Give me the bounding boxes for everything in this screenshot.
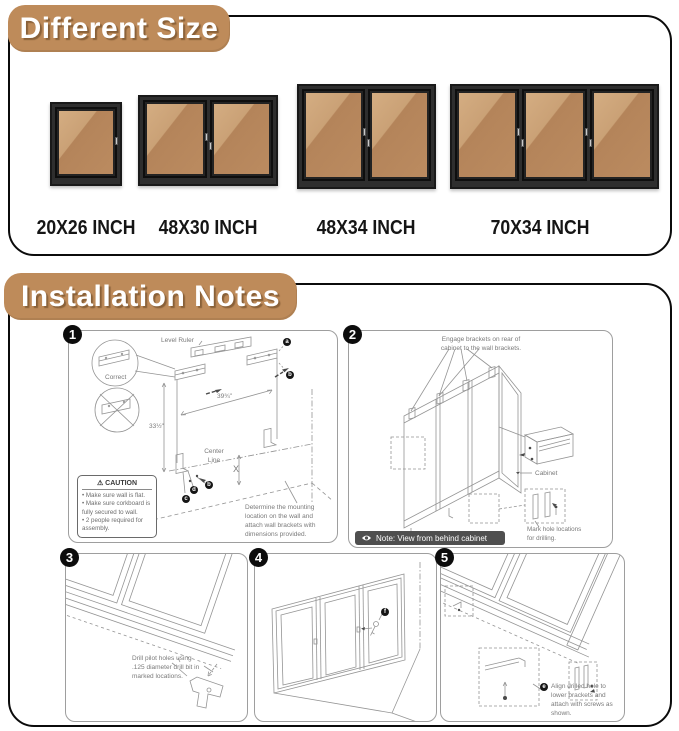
view-note-text: Note: View from behind cabinet — [376, 534, 487, 543]
step1-panel: 1 — [68, 330, 338, 543]
door — [522, 89, 586, 181]
board-70x34 — [450, 84, 659, 189]
x-dimension: X — [233, 463, 239, 476]
step2-number-badge: 2 — [343, 325, 362, 344]
align-note: Align drilled hole to lower brackets and… — [551, 682, 621, 718]
board-20x26 — [50, 102, 122, 186]
board-48x30 — [138, 95, 278, 186]
door — [368, 89, 431, 181]
part-badge-b2: b — [205, 481, 213, 489]
step2-line-art — [349, 331, 612, 547]
step5-number-badge: 5 — [435, 548, 454, 567]
lock-icon — [589, 139, 592, 147]
cork-surface — [372, 93, 427, 177]
mark-holes-note: Mark hole locations for drilling. — [527, 526, 585, 544]
view-note-bar: Note: View from behind cabinet — [355, 531, 505, 545]
step3-number-badge: 3 — [60, 548, 79, 567]
door — [143, 100, 207, 178]
cork-surface — [147, 104, 203, 174]
size-label-70x34: 70X34 INCH — [487, 217, 593, 240]
door — [210, 100, 274, 178]
screw-part-badge: e — [540, 683, 548, 691]
step1-number-badge: 1 — [63, 325, 82, 344]
cork-surface — [59, 111, 113, 174]
infographic-canvas: Different Size — [0, 0, 679, 731]
part-badge-b: b — [286, 371, 294, 379]
lock-icon — [209, 142, 212, 150]
cork-surface — [459, 93, 515, 177]
step3-line-art — [66, 554, 247, 721]
drill-note: Drill pilot holes using .125 diameter dr… — [132, 654, 206, 681]
door — [302, 89, 365, 181]
size-label-48x30: 48X30 INCH — [155, 217, 261, 240]
lock-icon — [367, 139, 370, 147]
lock-icon — [517, 128, 520, 136]
cabinet-label: Cabinet — [535, 469, 557, 478]
lock-icon — [115, 137, 118, 145]
lock-icon — [521, 139, 524, 147]
caution-item: Make sure corkboard is fully secured to … — [82, 500, 152, 517]
level-ruler-label: Level Ruler — [161, 336, 194, 345]
board-48x34 — [297, 84, 436, 189]
step4-panel: 4 — [254, 553, 437, 722]
part-badge-d: d — [190, 486, 198, 494]
door — [455, 89, 519, 181]
height-dimension: 33½" — [149, 422, 164, 431]
warning-icon: ⚠ — [97, 480, 103, 487]
caution-item: 2 people required for assembly. — [82, 517, 152, 534]
cork-surface — [306, 93, 361, 177]
step4-number-badge: 4 — [249, 548, 268, 567]
installation-title: Installation Notes — [4, 273, 297, 320]
different-size-title: Different Size — [8, 5, 230, 52]
step4-line-art — [255, 554, 436, 721]
door — [590, 89, 654, 181]
caution-title: ⚠ CAUTION — [82, 479, 152, 490]
cork-surface — [526, 93, 582, 177]
width-dimension: 39¾" — [217, 392, 232, 401]
lock-icon — [585, 128, 588, 136]
size-label-20x26: 20X26 INCH — [33, 217, 139, 240]
size-label-48x34: 48X34 INCH — [313, 217, 419, 240]
part-badge-c: c — [182, 495, 190, 503]
cork-surface — [214, 104, 270, 174]
eye-icon — [361, 534, 372, 542]
step1-note: Determine the mounting location on the w… — [245, 503, 329, 539]
key-part-badge: f — [381, 608, 389, 616]
lock-icon — [205, 133, 208, 141]
step5-panel: 5 — [440, 553, 625, 722]
step3-panel: 3 — [65, 553, 248, 722]
center-line-label: Center Line — [201, 447, 227, 465]
lock-icon — [363, 128, 366, 136]
cork-surface — [594, 93, 650, 177]
caution-box: ⚠ CAUTION Make sure wall is flat. Make s… — [77, 475, 157, 538]
engage-note: Engage brackets on rear of cabinet to th… — [435, 335, 527, 353]
part-badge-a: a — [283, 338, 291, 346]
caution-item: Make sure wall is flat. — [82, 492, 152, 500]
door — [55, 107, 117, 178]
correct-label: Correct — [105, 373, 126, 382]
step2-panel: 2 — [348, 330, 613, 548]
